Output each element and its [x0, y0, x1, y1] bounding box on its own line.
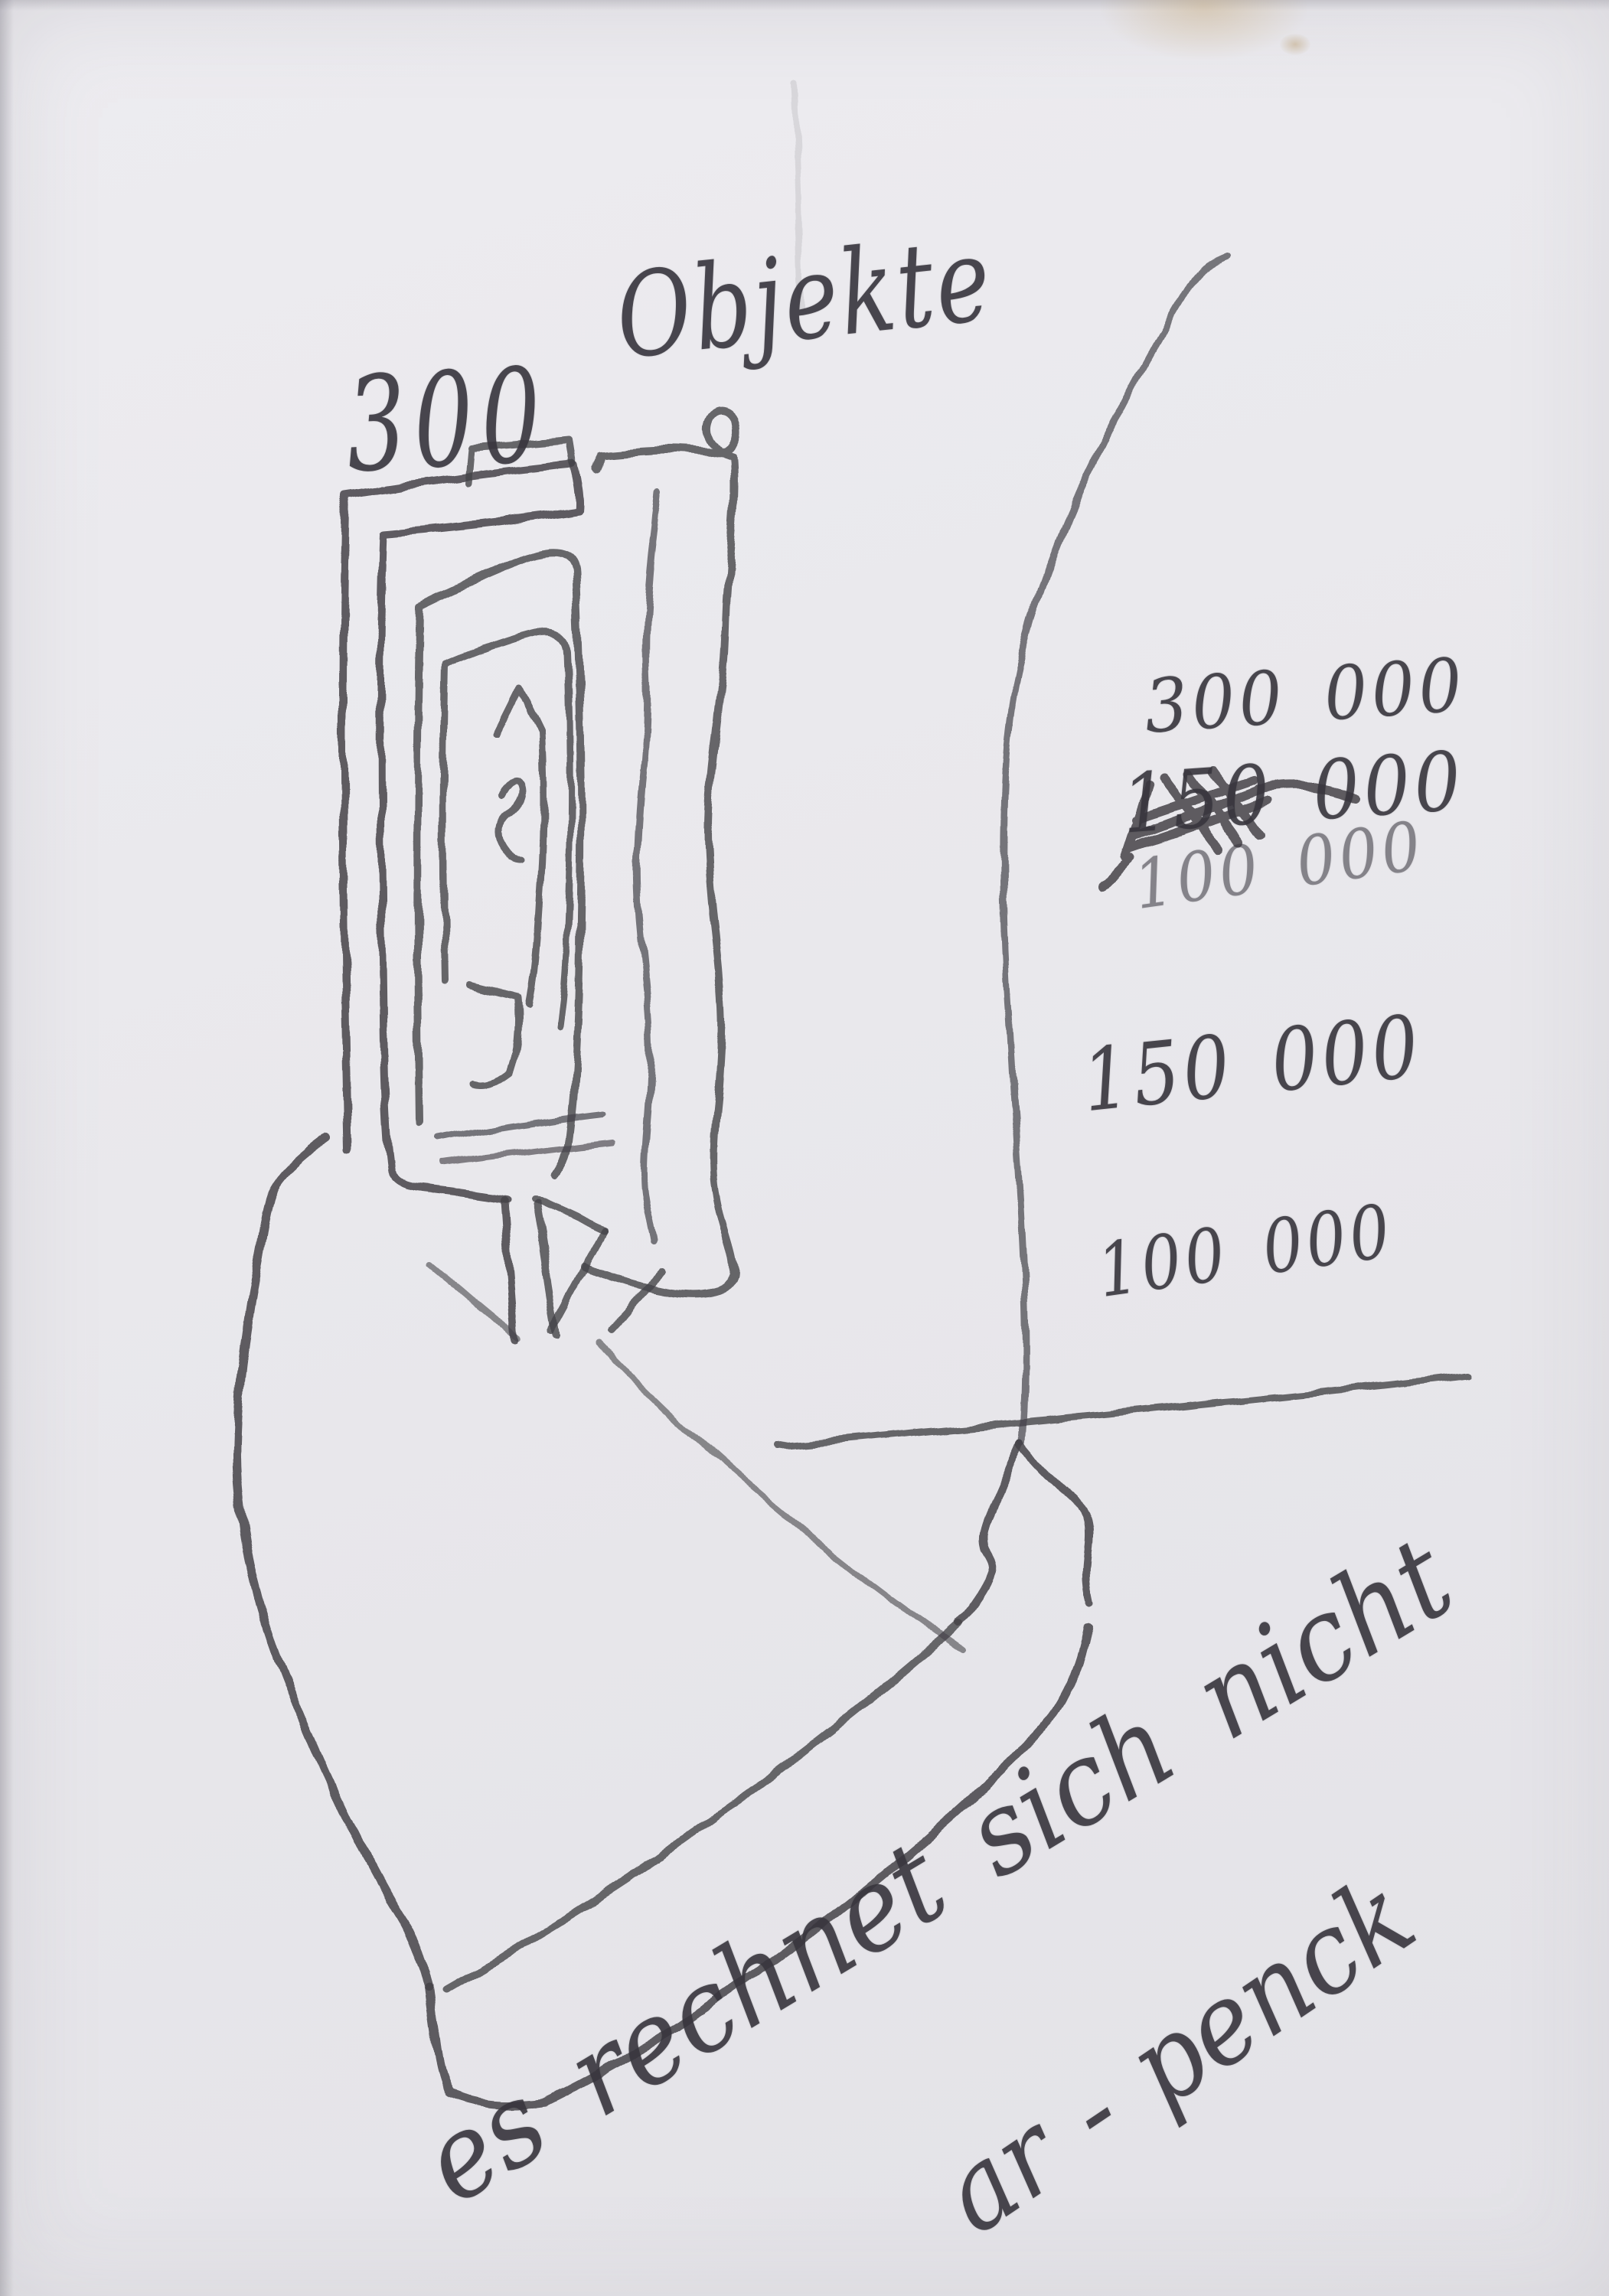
maze-figure-drawing: [343, 411, 737, 1294]
sum-underline: [778, 1376, 1467, 1445]
heading-count: 300: [343, 347, 552, 494]
hand-shape-drawing: [958, 1443, 1090, 1623]
neck-collar-drawing: [430, 1199, 665, 1339]
photographed-artwork: 300 Objekte 300 000 150 000 100 000 150 …: [0, 0, 1609, 2296]
